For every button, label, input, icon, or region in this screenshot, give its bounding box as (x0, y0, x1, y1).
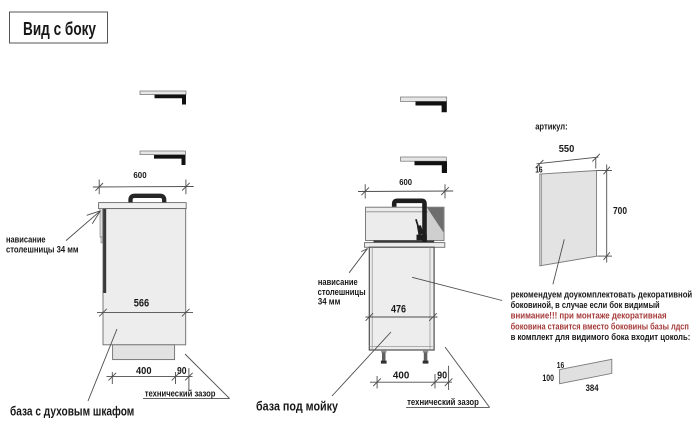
svg-text:артикул:: артикул: (535, 122, 568, 133)
svg-text:16: 16 (535, 165, 543, 175)
svg-text:400: 400 (393, 369, 410, 381)
svg-text:технический зазор: технический зазор (407, 397, 479, 408)
svg-text:34 мм: 34 мм (318, 297, 341, 308)
svg-text:Вид с боку: Вид с боку (23, 19, 96, 39)
svg-text:в комплект для видимого бока в: в комплект для видимого бока входит цоко… (511, 332, 691, 343)
svg-text:700: 700 (613, 205, 627, 217)
svg-text:600: 600 (399, 177, 412, 187)
svg-text:рекомендуем доукомплектовать д: рекомендуем доукомплектовать декоративно… (511, 290, 693, 301)
svg-text:боковина ставится вместо боков: боковина ставится вместо боковины базы л… (511, 321, 690, 332)
svg-text:внимание!!! при монтаже декора: внимание!!! при монтаже декоративная (511, 311, 667, 322)
svg-text:400: 400 (136, 365, 152, 377)
svg-text:100: 100 (542, 373, 554, 384)
svg-text:384: 384 (586, 383, 599, 394)
svg-text:боковиной, в случае если бок в: боковиной, в случае если бок видимый (511, 300, 660, 311)
svg-text:база под мойку: база под мойку (256, 400, 338, 414)
svg-text:90: 90 (437, 369, 447, 381)
svg-text:столешницы 34 мм: столешницы 34 мм (6, 245, 79, 256)
svg-text:16: 16 (557, 360, 565, 370)
svg-text:база с духовым шкафом: база с духовым шкафом (10, 405, 134, 419)
svg-text:90: 90 (177, 365, 187, 377)
svg-text:600: 600 (133, 170, 146, 180)
svg-text:550: 550 (559, 143, 575, 155)
svg-text:476: 476 (391, 304, 406, 316)
svg-text:технический зазор: технический зазор (145, 388, 216, 399)
svg-text:566: 566 (134, 297, 149, 309)
